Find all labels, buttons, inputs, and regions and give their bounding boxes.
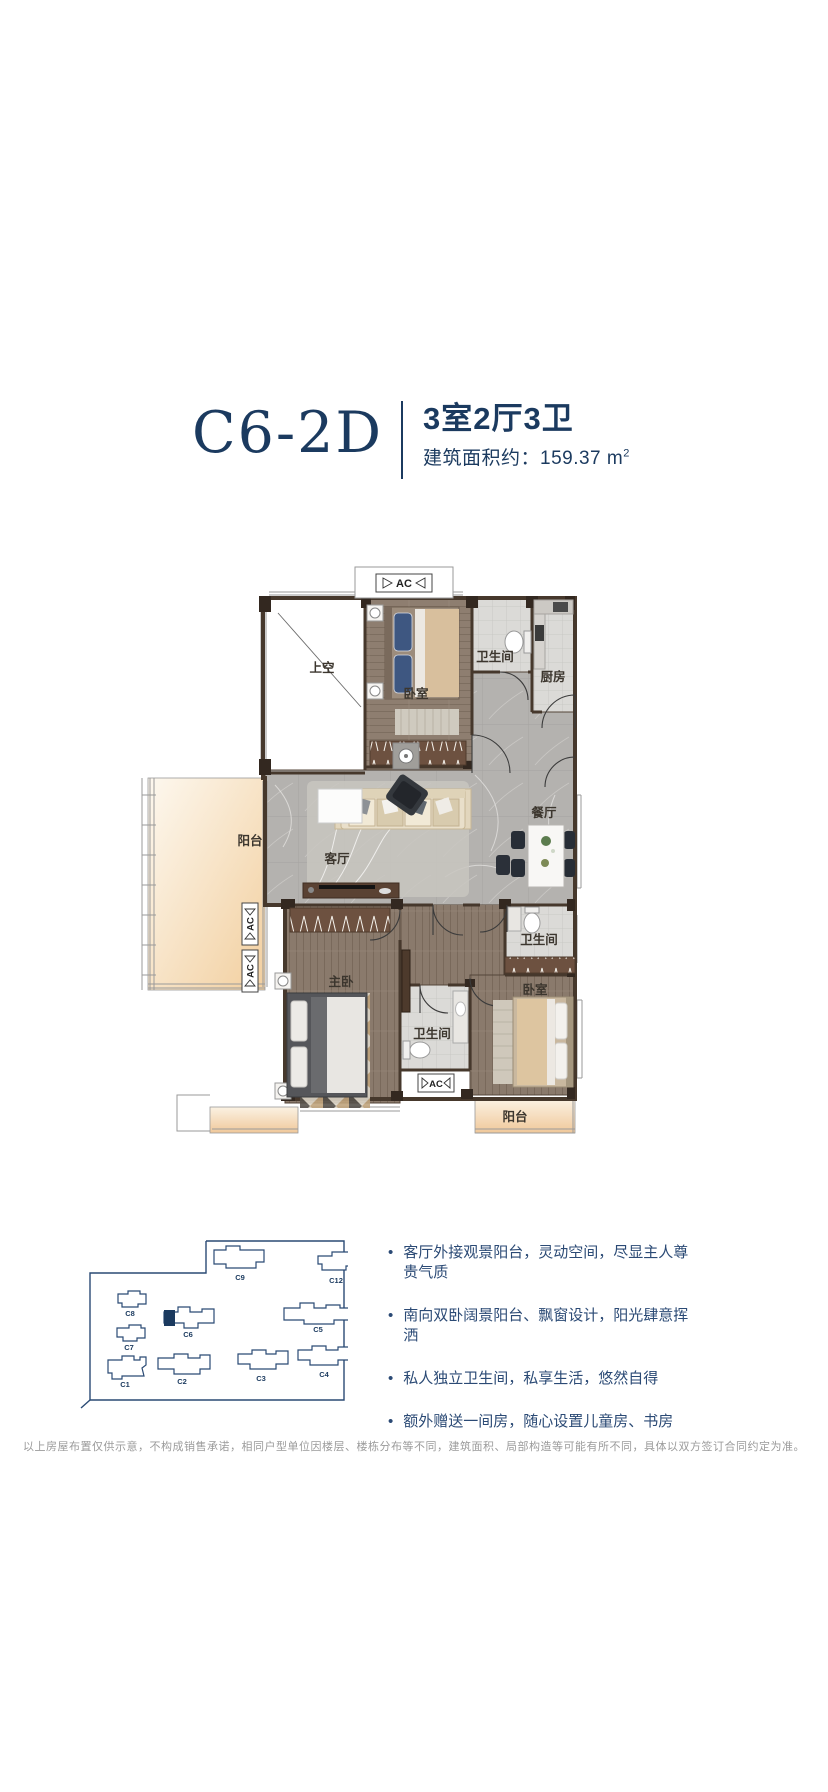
header-divider bbox=[401, 401, 403, 479]
building-label: C8 bbox=[125, 1309, 135, 1318]
building-label: C5 bbox=[313, 1325, 323, 1334]
corridor-console bbox=[402, 950, 410, 1012]
ac-label: AC bbox=[246, 964, 257, 978]
feature-item: • 客厅外接观景阳台，灵动空间，尽显主人尊贵气质 bbox=[388, 1243, 698, 1283]
bullet-icon: • bbox=[388, 1243, 393, 1263]
label-bedroom-bottom: 卧室 bbox=[522, 982, 548, 997]
feature-text: 额外赠送一间房，随心设置儿童房、书房 bbox=[403, 1412, 673, 1432]
label-kitchen: 厨房 bbox=[540, 669, 565, 684]
building-c4 bbox=[298, 1346, 348, 1365]
building-label: C4 bbox=[319, 1370, 329, 1379]
feature-item: • 南向双卧阔景阳台、飘窗设计，阳光肆意挥洒 bbox=[388, 1306, 698, 1346]
building-label: C6 bbox=[183, 1330, 193, 1339]
building-label: C9 bbox=[235, 1273, 245, 1282]
page: { "header": { "plan_code": "C6-2D", "lay… bbox=[0, 0, 828, 1792]
bullet-icon: • bbox=[388, 1412, 393, 1432]
label-bath-mid: 卫生间 bbox=[520, 932, 558, 947]
building-label: C7 bbox=[124, 1343, 134, 1352]
building-c12 bbox=[318, 1252, 348, 1270]
building-label: C3 bbox=[256, 1374, 266, 1383]
feature-list: • 客厅外接观景阳台，灵动空间，尽显主人尊贵气质 • 南向双卧阔景阳台、飘窗设计… bbox=[388, 1243, 698, 1455]
building-label: C12 bbox=[329, 1276, 343, 1285]
building-c3 bbox=[238, 1350, 288, 1369]
building-c1 bbox=[108, 1356, 146, 1379]
ac-label: AC bbox=[429, 1079, 443, 1090]
label-balcony-left: 阳台 bbox=[237, 833, 262, 848]
label-living: 客厅 bbox=[323, 851, 350, 866]
label-balcony-bottom: 阳台 bbox=[502, 1109, 527, 1124]
floorplan: AC AC AC AC 上空 卧室 卫生间 厨房 客厅 餐厅 阳台 主卧 卫生间… bbox=[115, 495, 640, 1140]
feature-item: • 额外赠送一间房，随心设置儿童房、书房 bbox=[388, 1412, 698, 1432]
ac-platform-top: AC bbox=[355, 567, 453, 598]
room-void bbox=[263, 598, 365, 773]
ac-platform-left-2: AC bbox=[242, 950, 258, 992]
label-bedroom-top: 卧室 bbox=[403, 686, 429, 701]
ac-label: AC bbox=[246, 917, 257, 931]
building-c2 bbox=[158, 1354, 210, 1374]
building-c6-highlight bbox=[164, 1310, 175, 1326]
feature-text: 南向双卧阔景阳台、飘窗设计，阳光肆意挥洒 bbox=[403, 1306, 698, 1346]
header-right: 3室2厅3卫 建筑面积约：159.37 m2 bbox=[423, 402, 630, 470]
label-bath-bottom: 卫生间 bbox=[413, 1026, 451, 1041]
label-master: 主卧 bbox=[328, 974, 354, 989]
plan-code: C6-2D bbox=[192, 400, 383, 466]
ac-platform-left-1: AC bbox=[242, 903, 258, 945]
feature-item: • 私人独立卫生间，私享生活，悠然自得 bbox=[388, 1369, 698, 1389]
layout-spec: 3室2厅3卫 bbox=[423, 402, 630, 436]
feature-text: 客厅外接观景阳台，灵动空间，尽显主人尊贵气质 bbox=[403, 1243, 698, 1283]
label-dining: 餐厅 bbox=[530, 805, 557, 820]
building-c9 bbox=[214, 1246, 264, 1268]
label-bath-top: 卫生间 bbox=[476, 649, 514, 664]
building-label: C2 bbox=[177, 1377, 187, 1386]
building-label: C1 bbox=[120, 1380, 130, 1389]
area-text: 建筑面积约：159.37 m2 bbox=[423, 443, 630, 470]
ac-platform-bottom: AC bbox=[418, 1074, 454, 1092]
site-plan: C9 C12 C8 C6 C5 C7 C1 C2 C3 C4 bbox=[78, 1240, 348, 1412]
building-c8 bbox=[118, 1291, 146, 1307]
building-c7 bbox=[117, 1325, 145, 1341]
bullet-icon: • bbox=[388, 1306, 393, 1326]
bedroom-bottom-furniture bbox=[493, 997, 573, 1087]
label-void: 上空 bbox=[309, 660, 334, 675]
bullet-icon: • bbox=[388, 1369, 393, 1389]
feature-text: 私人独立卫生间，私享生活，悠然自得 bbox=[403, 1369, 658, 1389]
disclaimer: 以上房屋布置仅供示意，不构成销售承诺，相同户型单位因楼层、楼栋分布等不同，建筑面… bbox=[0, 1438, 828, 1454]
ac-label: AC bbox=[396, 578, 412, 590]
building-c5 bbox=[284, 1303, 348, 1324]
room-corridor bbox=[400, 905, 505, 985]
